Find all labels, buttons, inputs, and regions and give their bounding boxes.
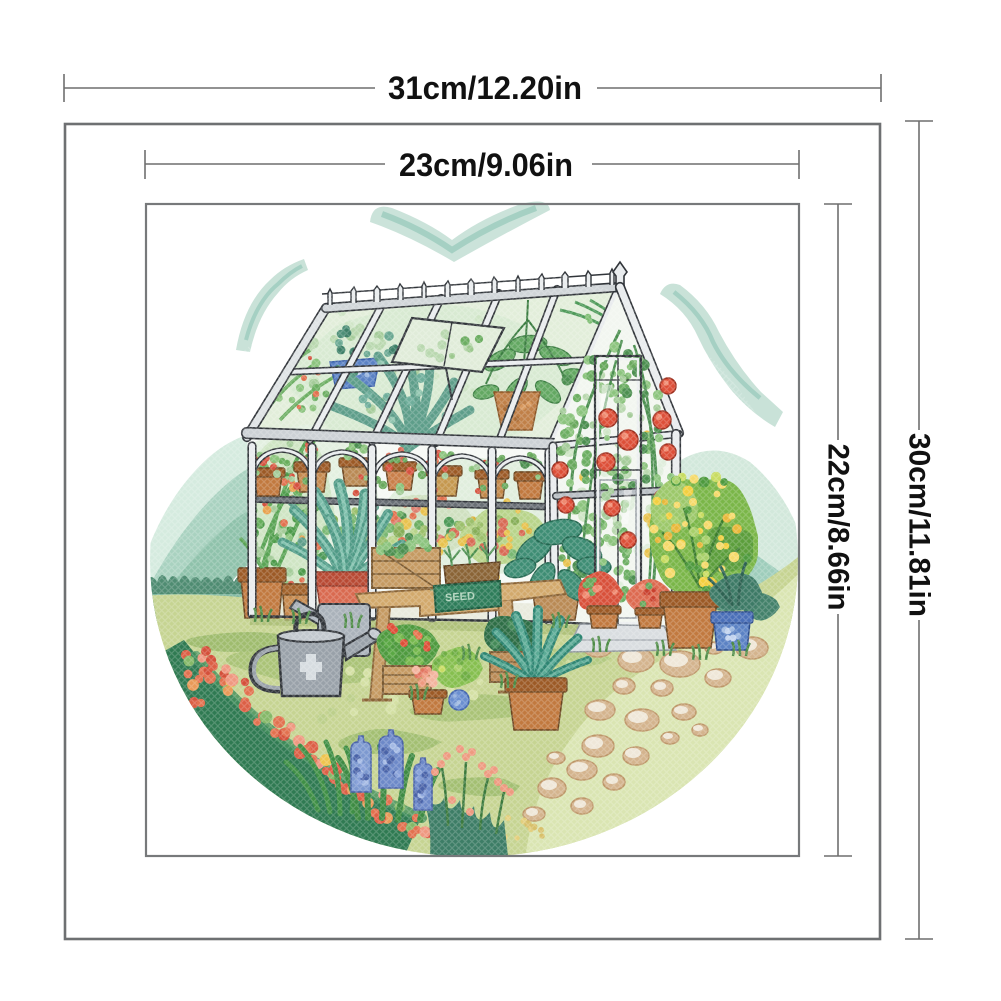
svg-text:23cm/9.06in: 23cm/9.06in [399, 147, 573, 183]
svg-text:30cm/11.81in: 30cm/11.81in [903, 433, 936, 617]
svg-text:22cm/8.66in: 22cm/8.66in [822, 444, 855, 611]
svg-text:31cm/12.20in: 31cm/12.20in [388, 70, 582, 106]
